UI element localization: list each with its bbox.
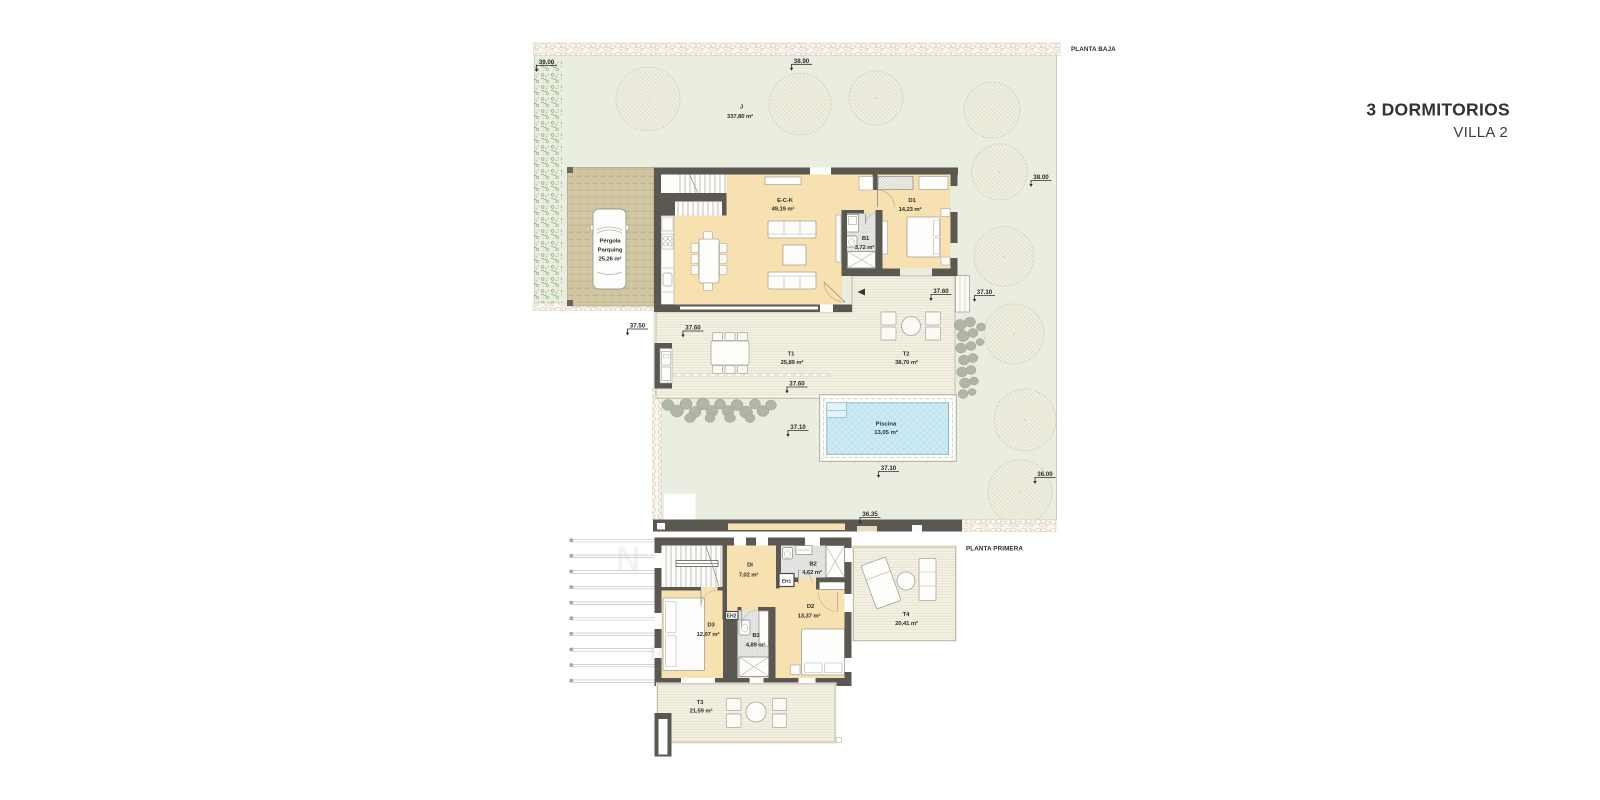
svg-text:49,19 m²: 49,19 m² <box>772 206 795 213</box>
svg-text:4,62 m²: 4,62 m² <box>802 569 822 576</box>
svg-text:38,70 m²: 38,70 m² <box>895 359 918 366</box>
svg-text:25,26 m²: 25,26 m² <box>599 256 622 263</box>
svg-text:EH2: EH2 <box>727 614 737 620</box>
svg-text:37.60: 37.60 <box>789 381 805 388</box>
svg-text:39.00: 39.00 <box>539 59 555 66</box>
svg-text:Parquing: Parquing <box>598 248 623 254</box>
svg-text:D2: D2 <box>807 604 815 610</box>
svg-text:20,41 m²: 20,41 m² <box>895 620 918 627</box>
svg-text:T4: T4 <box>903 612 910 618</box>
svg-text:B1: B1 <box>862 236 870 242</box>
svg-text:37.50: 37.50 <box>630 323 646 330</box>
svg-text:VILLA 2: VILLA 2 <box>1453 124 1508 141</box>
svg-text:B3: B3 <box>752 633 760 639</box>
svg-text:N: N <box>616 540 641 578</box>
svg-text:14,23 m²: 14,23 m² <box>899 206 922 213</box>
svg-text:21,59 m²: 21,59 m² <box>690 708 713 715</box>
svg-text:T3: T3 <box>697 700 704 706</box>
svg-text:7,02 m²: 7,02 m² <box>739 572 759 579</box>
svg-text:T2: T2 <box>903 352 910 358</box>
svg-text:B2: B2 <box>809 562 817 568</box>
svg-text:3 DORMITORIOS: 3 DORMITORIOS <box>1366 100 1510 120</box>
svg-text:12,07 m²: 12,07 m² <box>697 631 720 638</box>
svg-text:EH1: EH1 <box>782 579 792 585</box>
svg-text:T1: T1 <box>788 352 795 358</box>
svg-text:38.90: 38.90 <box>794 58 810 65</box>
svg-text:37.10: 37.10 <box>881 465 897 472</box>
svg-text:13,05 m²: 13,05 m² <box>874 429 898 436</box>
svg-text:13,37 m²: 13,37 m² <box>798 613 821 620</box>
svg-text:PLANTA BAJA: PLANTA BAJA <box>1071 46 1116 53</box>
svg-text:337,80 m²: 337,80 m² <box>727 113 753 120</box>
svg-text:4,89 m²: 4,89 m² <box>746 642 766 649</box>
svg-text:37.60: 37.60 <box>933 288 949 295</box>
svg-text:36.00: 36.00 <box>1037 471 1053 478</box>
svg-text:E-C-K: E-C-K <box>777 198 794 204</box>
svg-text:38.00: 38.00 <box>1033 174 1049 181</box>
svg-text:DI: DI <box>747 563 753 569</box>
svg-text:D3: D3 <box>707 623 715 629</box>
svg-text:36.35: 36.35 <box>862 511 878 518</box>
svg-text:37.60: 37.60 <box>685 325 701 332</box>
svg-text:37.10: 37.10 <box>790 424 806 431</box>
svg-text:PLANTA PRIMERA: PLANTA PRIMERA <box>966 546 1023 553</box>
svg-text:Pérgola: Pérgola <box>600 239 622 245</box>
svg-text:D1: D1 <box>908 198 916 204</box>
svg-text:Piscina: Piscina <box>876 422 897 428</box>
svg-text:3,72 m²: 3,72 m² <box>855 244 875 251</box>
svg-text:J: J <box>740 105 743 111</box>
svg-text:25,89 m²: 25,89 m² <box>781 359 804 366</box>
svg-text:37.10: 37.10 <box>977 289 993 296</box>
